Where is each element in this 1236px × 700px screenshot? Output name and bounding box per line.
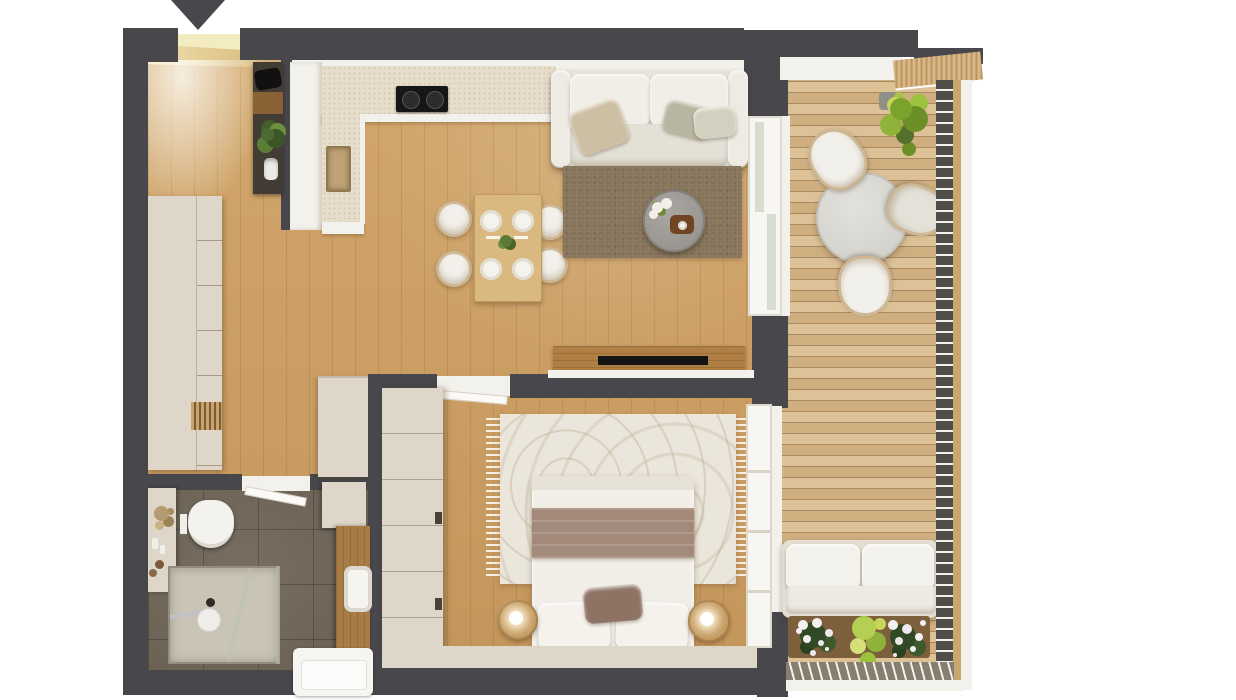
planter-flowers-right xyxy=(888,620,898,630)
wall-bathroom-bottom xyxy=(123,670,295,695)
toilet-flush-plate xyxy=(180,514,187,534)
bedroom-rug-fringe-left xyxy=(486,418,500,580)
wall-bedroom-bottom-over xyxy=(382,668,757,695)
balcony-top-ledge xyxy=(780,57,903,80)
outdoor-sofa-back-right xyxy=(862,544,934,590)
plate xyxy=(480,258,502,280)
wall-balcony-door-sill xyxy=(752,315,788,408)
lamp-right xyxy=(700,612,714,626)
kitchen-counter-left-front xyxy=(360,118,365,224)
dried-plant xyxy=(154,506,169,521)
balcony-door-glass-upper xyxy=(755,122,764,212)
entry-vase xyxy=(264,158,278,180)
kitchen-counter-left-run xyxy=(322,66,360,224)
bottle xyxy=(152,538,158,549)
wardrobe-handle xyxy=(435,512,442,524)
bedroom-bottom-ledge xyxy=(382,646,757,668)
kitchen-counter-end xyxy=(322,222,364,234)
plate xyxy=(512,210,534,232)
entrance-arrow-icon xyxy=(171,0,225,30)
plate xyxy=(512,258,534,280)
balcony-door-glass-lower xyxy=(767,214,776,310)
entry-light-pool xyxy=(148,60,260,210)
floor-plan xyxy=(0,0,1236,700)
bedroom-balcony-window xyxy=(746,404,772,648)
wardrobe-handle xyxy=(435,598,442,610)
bathroom-sink xyxy=(344,566,372,612)
cutlery xyxy=(514,236,528,239)
balcony-railing-right xyxy=(936,80,953,682)
balcony-corner-plant xyxy=(890,98,912,120)
throw-pillow-light xyxy=(692,105,737,140)
kitchen-cabinet-west-front xyxy=(290,62,322,230)
bed-fold xyxy=(532,476,694,490)
dining-table xyxy=(474,194,542,302)
kitchen-sink xyxy=(326,146,351,192)
hall-closet xyxy=(318,376,368,477)
shower-seat xyxy=(197,608,221,632)
console-wood-shelf xyxy=(253,92,283,114)
plate xyxy=(480,210,502,232)
shower-drain xyxy=(206,598,215,607)
wall-bathroom-north-a xyxy=(123,474,242,490)
wall-top-main xyxy=(240,28,744,60)
living-balcony-door xyxy=(748,116,782,316)
window-outer-sill xyxy=(772,406,782,612)
cooktop-burner-left xyxy=(402,91,420,109)
lamp-left xyxy=(509,611,523,625)
railing-cap-wood xyxy=(953,80,961,682)
candle xyxy=(155,560,164,569)
candle xyxy=(149,569,157,577)
planter-flowers-left xyxy=(798,620,808,630)
cooktop-burner-right xyxy=(426,91,444,109)
table-centerpiece xyxy=(500,235,512,247)
bathroom-cabinet xyxy=(322,482,366,528)
coffee-cup xyxy=(678,221,687,230)
dining-chair-bottom-left xyxy=(436,251,472,287)
wall-left-outer xyxy=(123,28,148,695)
outdoor-sofa-back-left xyxy=(786,544,860,590)
railing-outer-edge-right xyxy=(961,80,972,690)
bedroom-wardrobe xyxy=(382,388,443,662)
planter-plant-middle xyxy=(852,616,876,640)
toilet xyxy=(188,500,234,548)
outdoor-sofa-seat xyxy=(786,586,936,614)
bedroom-wall-ledge xyxy=(548,370,754,378)
tv xyxy=(598,356,708,365)
hall-wardrobe-vent xyxy=(191,402,222,430)
balcony-door-outer-sill xyxy=(782,116,790,316)
entry-plant xyxy=(261,128,274,141)
railing-outer-edge-bottom xyxy=(786,680,964,691)
wall-top-left xyxy=(123,28,178,62)
bed-accent-pillow xyxy=(583,584,644,625)
window-mullion xyxy=(748,590,770,593)
cutlery xyxy=(486,236,500,239)
window-mullion xyxy=(748,470,770,473)
bottle xyxy=(160,545,165,554)
coffee-table-flowers xyxy=(652,202,663,213)
dining-chair-top-left xyxy=(436,201,472,237)
washing-machine-lid xyxy=(301,660,367,690)
window-mullion xyxy=(748,530,770,533)
bed-blanket xyxy=(532,508,694,558)
balcony-railing-bottom xyxy=(786,662,954,680)
shower-glass-right xyxy=(276,566,280,664)
